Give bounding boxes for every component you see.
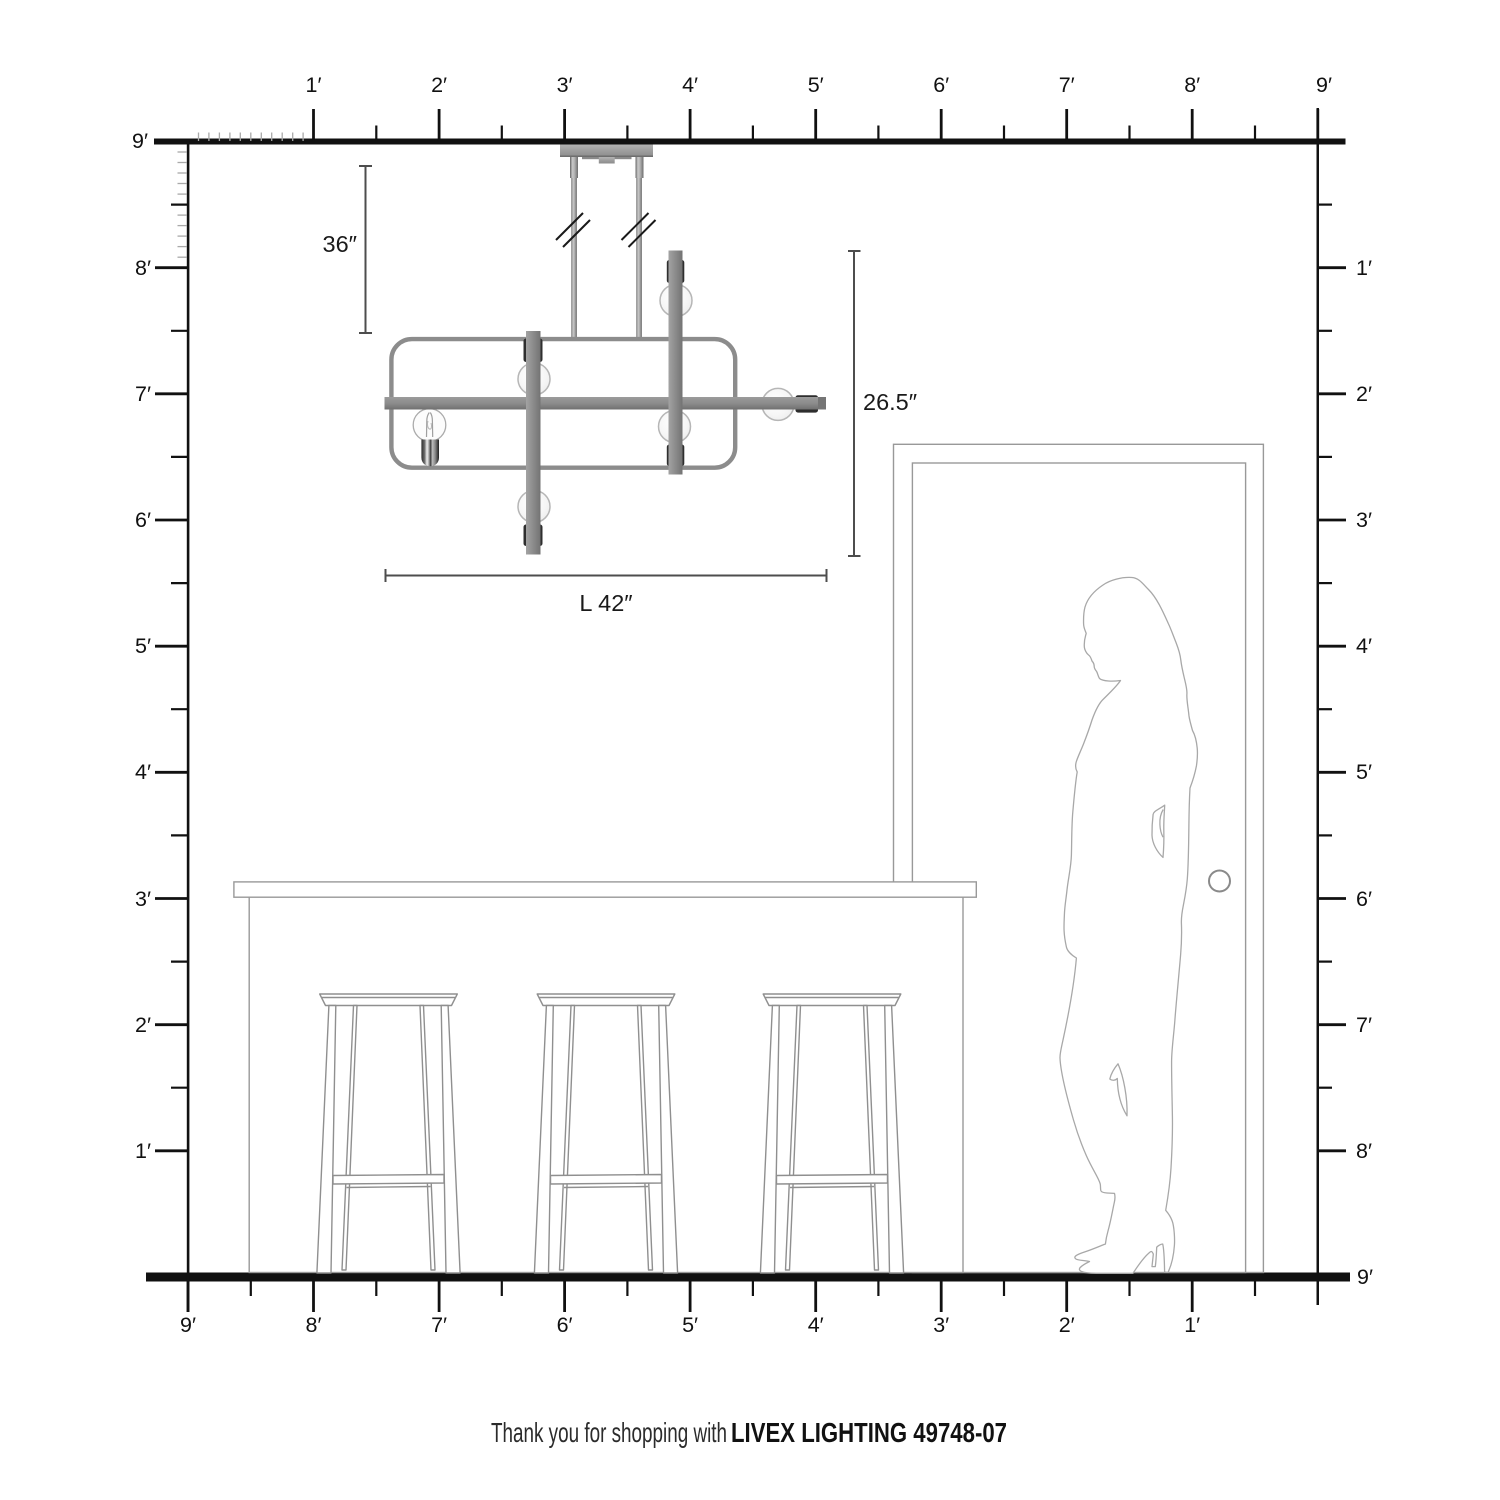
svg-text:6′: 6′ bbox=[1356, 887, 1372, 911]
svg-text:3′: 3′ bbox=[1356, 508, 1372, 532]
svg-text:36″: 36″ bbox=[323, 231, 357, 257]
svg-text:5′: 5′ bbox=[808, 73, 824, 97]
svg-text:8′: 8′ bbox=[1184, 73, 1200, 97]
svg-text:2′: 2′ bbox=[135, 1013, 151, 1037]
svg-text:1′: 1′ bbox=[306, 73, 322, 97]
svg-text:6′: 6′ bbox=[557, 1313, 573, 1337]
svg-text:3′: 3′ bbox=[933, 1313, 949, 1337]
svg-text:1′: 1′ bbox=[135, 1139, 151, 1163]
svg-text:9′: 9′ bbox=[1357, 1265, 1373, 1289]
svg-text:1′: 1′ bbox=[1184, 1313, 1200, 1337]
svg-text:3′: 3′ bbox=[135, 887, 151, 911]
svg-text:9′: 9′ bbox=[132, 129, 148, 153]
svg-text:5′: 5′ bbox=[135, 634, 151, 658]
svg-text:4′: 4′ bbox=[135, 760, 151, 784]
svg-text:8′: 8′ bbox=[1356, 1139, 1372, 1163]
svg-text:3′: 3′ bbox=[557, 73, 573, 97]
svg-text:26.5″: 26.5″ bbox=[863, 389, 917, 415]
svg-text:4′: 4′ bbox=[682, 73, 698, 97]
svg-text:7′: 7′ bbox=[1059, 73, 1075, 97]
svg-text:2′: 2′ bbox=[1059, 1313, 1075, 1337]
svg-text:1′: 1′ bbox=[1356, 256, 1372, 280]
svg-text:7′: 7′ bbox=[431, 1313, 447, 1337]
svg-text:4′: 4′ bbox=[808, 1313, 824, 1337]
svg-text:2′: 2′ bbox=[1356, 382, 1372, 406]
svg-text:9′: 9′ bbox=[1316, 73, 1332, 97]
svg-text:5′: 5′ bbox=[1356, 760, 1372, 784]
svg-text:2′: 2′ bbox=[431, 73, 447, 97]
svg-text:8′: 8′ bbox=[306, 1313, 322, 1337]
svg-text:7′: 7′ bbox=[135, 382, 151, 406]
svg-text:5′: 5′ bbox=[682, 1313, 698, 1337]
svg-text:L 42″: L 42″ bbox=[579, 590, 632, 616]
svg-text:6′: 6′ bbox=[135, 508, 151, 532]
svg-text:9′: 9′ bbox=[180, 1313, 196, 1337]
svg-text:6′: 6′ bbox=[933, 73, 949, 97]
svg-text:4′: 4′ bbox=[1356, 634, 1372, 658]
svg-text:Thank you for shopping with: Thank you for shopping with bbox=[491, 1417, 727, 1448]
svg-text:8′: 8′ bbox=[135, 256, 151, 280]
svg-text:LIVEX LIGHTING 49748-07: LIVEX LIGHTING 49748-07 bbox=[731, 1417, 1007, 1448]
svg-text:7′: 7′ bbox=[1356, 1013, 1372, 1037]
